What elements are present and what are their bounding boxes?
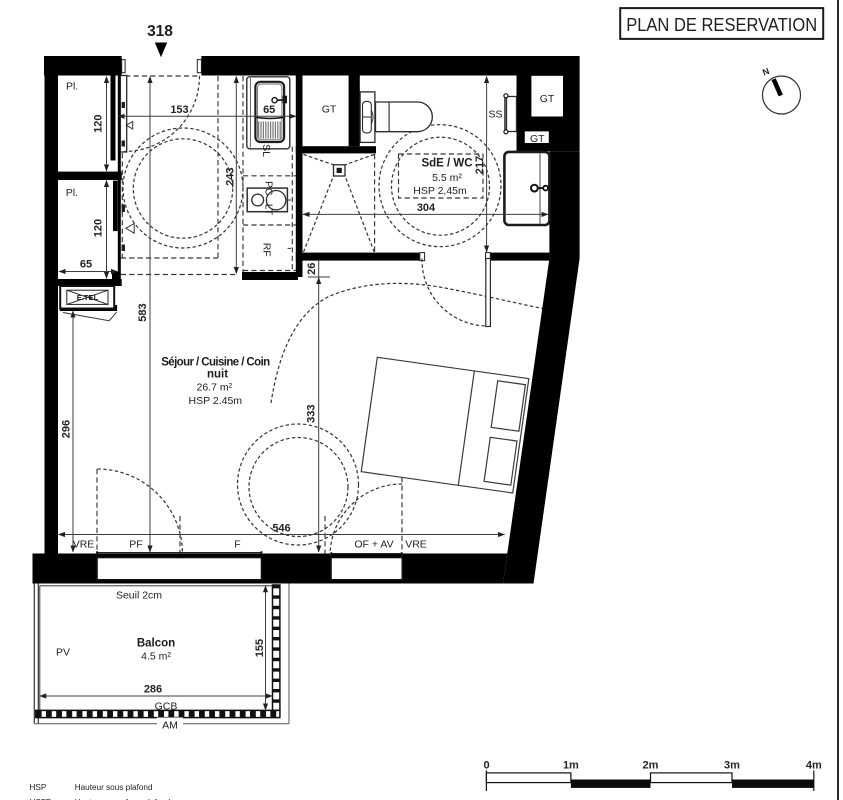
- svg-text:PC: PC: [263, 181, 275, 196]
- svg-text:153: 153: [170, 104, 188, 116]
- svg-text:HSP 2,45m: HSP 2,45m: [413, 185, 467, 197]
- svg-text:583: 583: [137, 303, 149, 321]
- svg-text:155: 155: [254, 639, 266, 657]
- svg-text:Balcon: Balcon: [137, 637, 175, 649]
- svg-text:PLAN DE RESERVATION: PLAN DE RESERVATION: [626, 14, 817, 35]
- svg-text:Hauteur sous plafond: Hauteur sous plafond: [75, 783, 153, 792]
- svg-text:VRE: VRE: [405, 539, 427, 551]
- svg-text:1m: 1m: [563, 760, 579, 772]
- svg-text:AM: AM: [162, 720, 178, 732]
- svg-text:65: 65: [80, 259, 92, 271]
- svg-text:2m: 2m: [643, 760, 659, 772]
- svg-text:26.7 m²: 26.7 m²: [196, 382, 232, 394]
- svg-text:HSP: HSP: [30, 783, 47, 792]
- svg-text:333: 333: [306, 405, 318, 423]
- svg-text:296: 296: [61, 420, 73, 438]
- svg-text:GT: GT: [322, 104, 337, 116]
- svg-text:65: 65: [263, 104, 275, 116]
- svg-text:4m: 4m: [806, 760, 822, 772]
- svg-text:Pl.: Pl.: [66, 187, 78, 199]
- svg-text:HSP 2.45m: HSP 2.45m: [189, 395, 243, 407]
- svg-text:318: 318: [147, 23, 173, 40]
- svg-text:Séjour / Cuisine / Coin: Séjour / Cuisine / Coin: [161, 357, 270, 369]
- svg-text:PV: PV: [56, 647, 70, 659]
- svg-text:243: 243: [225, 168, 237, 186]
- svg-text:Pl.: Pl.: [66, 81, 78, 93]
- svg-text:Seuil 2cm: Seuil 2cm: [116, 590, 162, 602]
- svg-text:286: 286: [144, 683, 162, 695]
- svg-text:SS: SS: [488, 108, 502, 120]
- svg-text:120: 120: [93, 219, 105, 237]
- svg-text:VRE: VRE: [73, 539, 95, 551]
- svg-text:120: 120: [93, 115, 105, 133]
- svg-text:0: 0: [483, 760, 489, 772]
- svg-text:3m: 3m: [724, 760, 740, 772]
- svg-text:F: F: [234, 539, 240, 551]
- svg-text:217: 217: [474, 156, 486, 174]
- svg-text:SdE / WC: SdE / WC: [421, 158, 472, 170]
- svg-text:E.TEL: E.TEL: [77, 293, 99, 302]
- svg-text:GCB: GCB: [155, 700, 178, 712]
- svg-text:304: 304: [417, 202, 436, 214]
- svg-text:LT: LT: [263, 204, 275, 216]
- svg-text:nuit: nuit: [207, 369, 228, 381]
- svg-text:SL: SL: [260, 144, 272, 157]
- svg-text:PF: PF: [129, 539, 142, 551]
- svg-text:RF: RF: [260, 243, 272, 257]
- svg-text:26: 26: [306, 263, 318, 275]
- svg-text:OF + AV: OF + AV: [354, 539, 393, 551]
- svg-text:4.5 m²: 4.5 m²: [141, 650, 171, 662]
- svg-text:5.5 m²: 5.5 m²: [432, 172, 462, 184]
- svg-text:546: 546: [272, 523, 290, 535]
- svg-text:GT: GT: [540, 93, 555, 105]
- svg-text:GT: GT: [530, 133, 545, 145]
